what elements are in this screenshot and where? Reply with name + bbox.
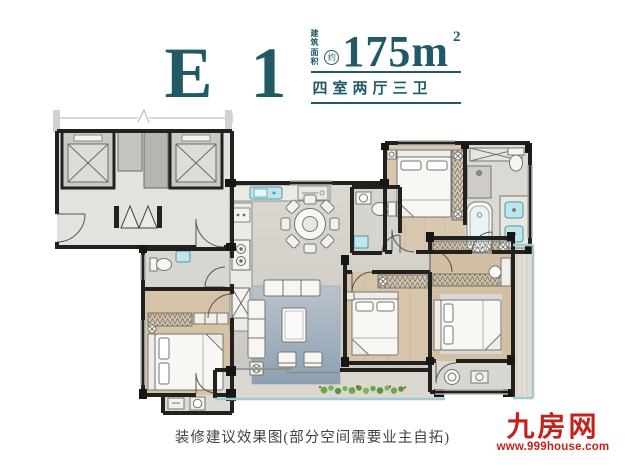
washing-machine-icon	[190, 397, 205, 410]
elevator-shaft-icon	[170, 131, 222, 188]
wardrobe-icon	[148, 313, 192, 326]
bed-icon	[148, 334, 223, 390]
shaft-duct	[144, 131, 168, 188]
dresser-icon	[194, 313, 228, 324]
floor-plan	[0, 0, 625, 469]
elevator-shaft-icon	[62, 131, 114, 188]
floor-plan-image	[0, 0, 625, 469]
toilet-icon	[508, 148, 524, 171]
shaft-duct	[118, 131, 142, 171]
bed-icon	[397, 150, 451, 217]
round-washbasin-icon	[445, 370, 460, 385]
site-logo: 九房网 www.999house.com	[493, 412, 613, 453]
washing-machine-icon	[471, 371, 488, 383]
fridge-icon	[232, 288, 250, 318]
bed-icon	[352, 292, 398, 355]
toilet-icon	[150, 258, 172, 271]
dining-table-icon	[281, 195, 339, 253]
side-balcony-floor	[513, 245, 532, 397]
shower-tray-icon	[354, 236, 368, 248]
nightstand-icon	[387, 150, 396, 159]
washbasin-icon	[176, 251, 190, 262]
nightstand-icon	[346, 292, 354, 300]
wardrobe-icon	[452, 150, 464, 220]
floorplan-page: E 1 建筑 面积 约 175m 2 四室两厅三卫	[0, 0, 625, 469]
kitchen-sink-icon	[250, 187, 282, 199]
washbasin-icon	[356, 192, 371, 204]
dimension-line	[53, 110, 232, 132]
site-url: www.999house.com	[493, 441, 613, 453]
counter-appliance	[232, 208, 250, 222]
bed-icon	[434, 300, 501, 350]
coffee-table-icon	[282, 308, 306, 342]
shower-icon	[467, 166, 491, 198]
site-logo-text: 九房网	[493, 412, 613, 441]
